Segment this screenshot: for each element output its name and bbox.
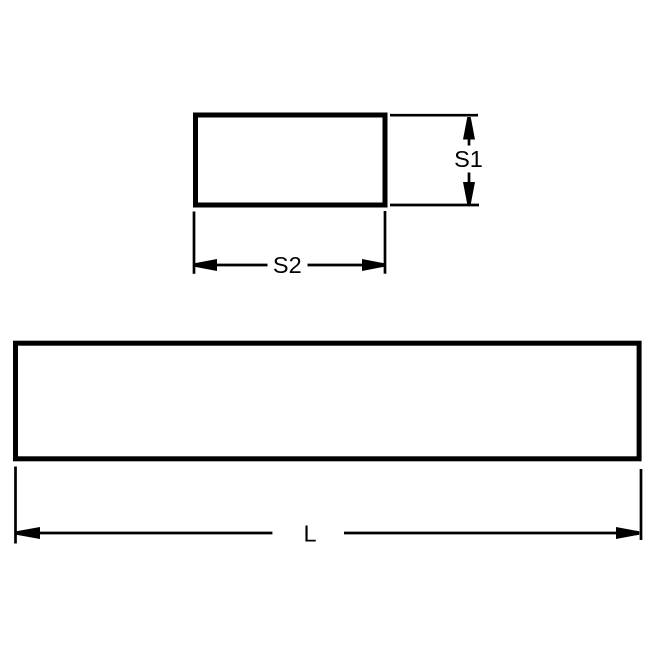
svg-text:S2: S2 — [273, 252, 302, 278]
svg-text:S1: S1 — [454, 146, 483, 172]
svg-text:L: L — [303, 521, 316, 547]
